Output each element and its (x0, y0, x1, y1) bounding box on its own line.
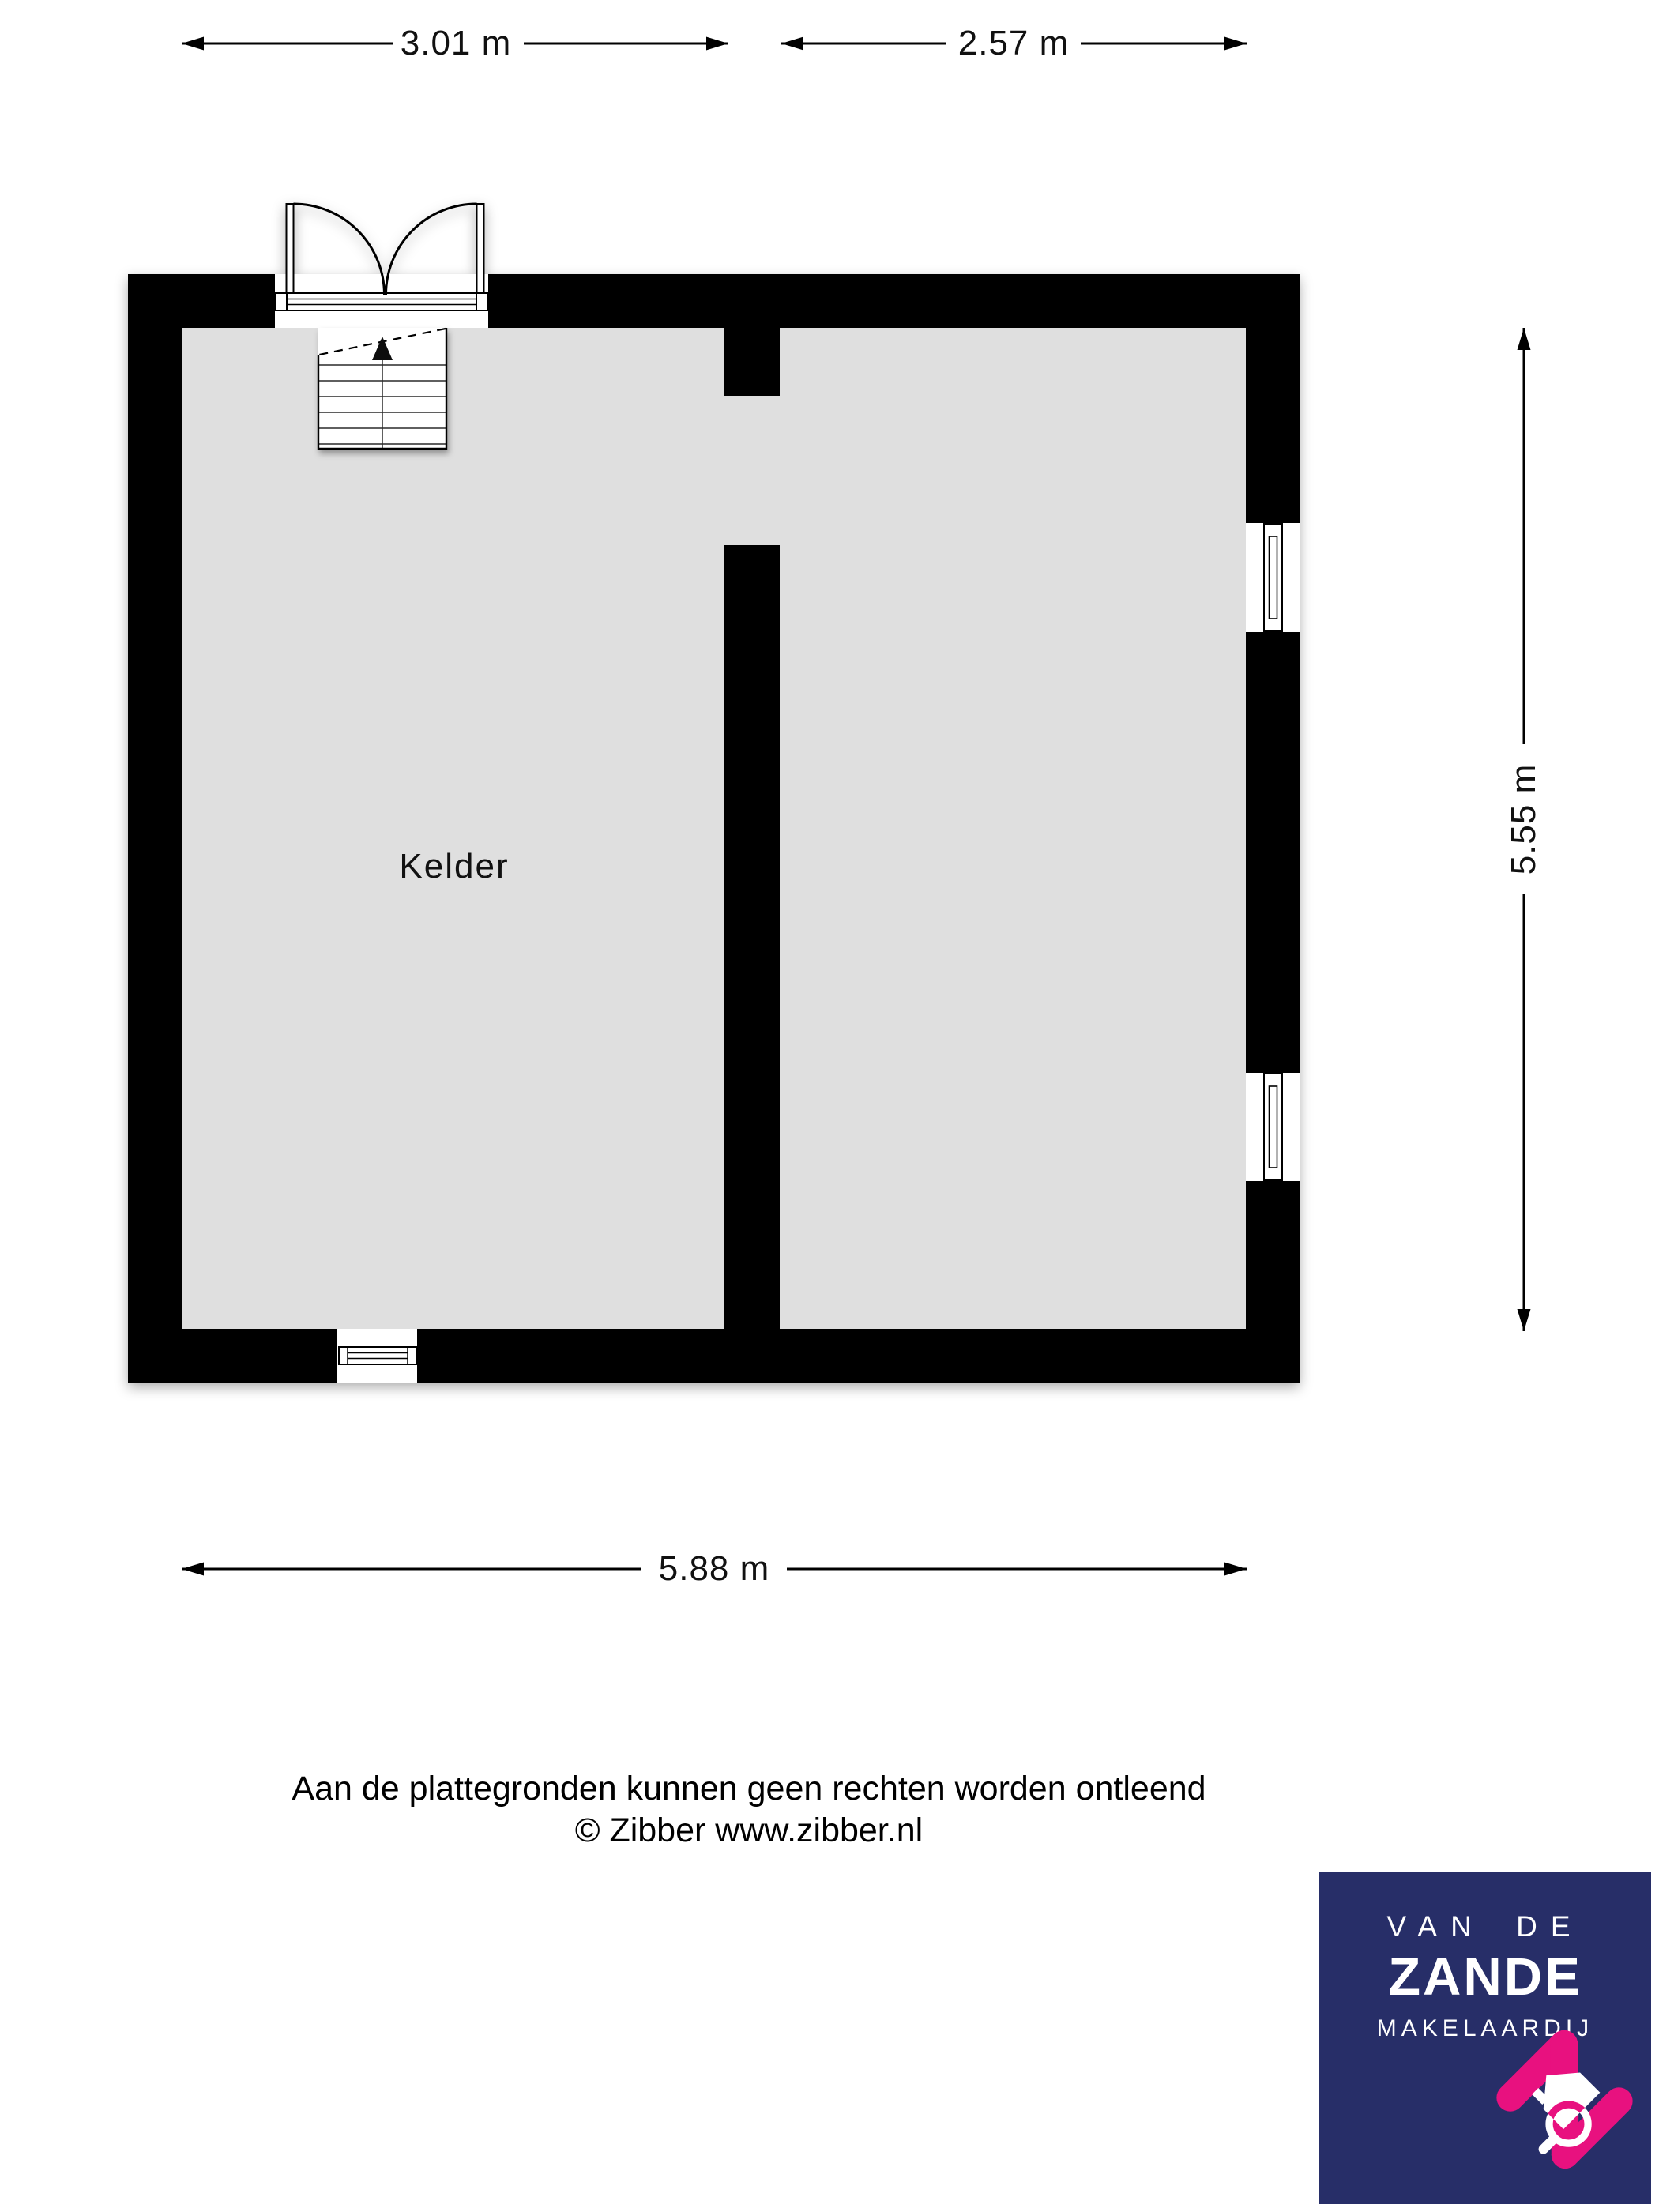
wall-top-right-segment (488, 274, 1300, 328)
disclaimer: Aan de plattegronden kunnen geen rechten… (292, 1768, 1206, 1852)
floor-area (182, 328, 1246, 1329)
logo-line-van-de: VAN DE (1319, 1910, 1651, 1943)
logo-house-magnifier-icon (1492, 2013, 1638, 2187)
window-icon-right-upper (1264, 524, 1282, 631)
disclaimer-line1: Aan de plattegronden kunnen geen rechten… (292, 1768, 1206, 1810)
wall-bottom (128, 1329, 1300, 1382)
room-label-kelder: Kelder (399, 847, 509, 886)
double-door-swing-icon (275, 204, 488, 310)
window-icon-bottom (339, 1347, 416, 1364)
building (128, 204, 1300, 1382)
disclaimer-line2: © Zibber www.zibber.nl (292, 1810, 1206, 1852)
stairs-up-arrow-icon (318, 328, 446, 449)
interior-wall-main (724, 545, 780, 1329)
dimension-label-top-left: 3.01 m (401, 24, 512, 63)
wall-left (128, 274, 182, 1382)
floorplan-page: 3.01 m 2.57 m 5.55 m 5.88 m Kelder Aan d… (0, 0, 1659, 2212)
dimension-label-top-right: 2.57 m (958, 24, 1070, 63)
interior-wall-stub (724, 328, 780, 396)
van-de-zande-logo: VAN DE ZANDE MAKELAARDIJ (1319, 1872, 1651, 2204)
logo-line-zande: ZANDE (1319, 1947, 1651, 2007)
dimension-label-bottom: 5.88 m (659, 1549, 770, 1589)
wall-right (1246, 274, 1300, 1382)
dimension-label-right: 5.55 m (1504, 764, 1544, 875)
window-icon-right-lower (1264, 1074, 1282, 1180)
